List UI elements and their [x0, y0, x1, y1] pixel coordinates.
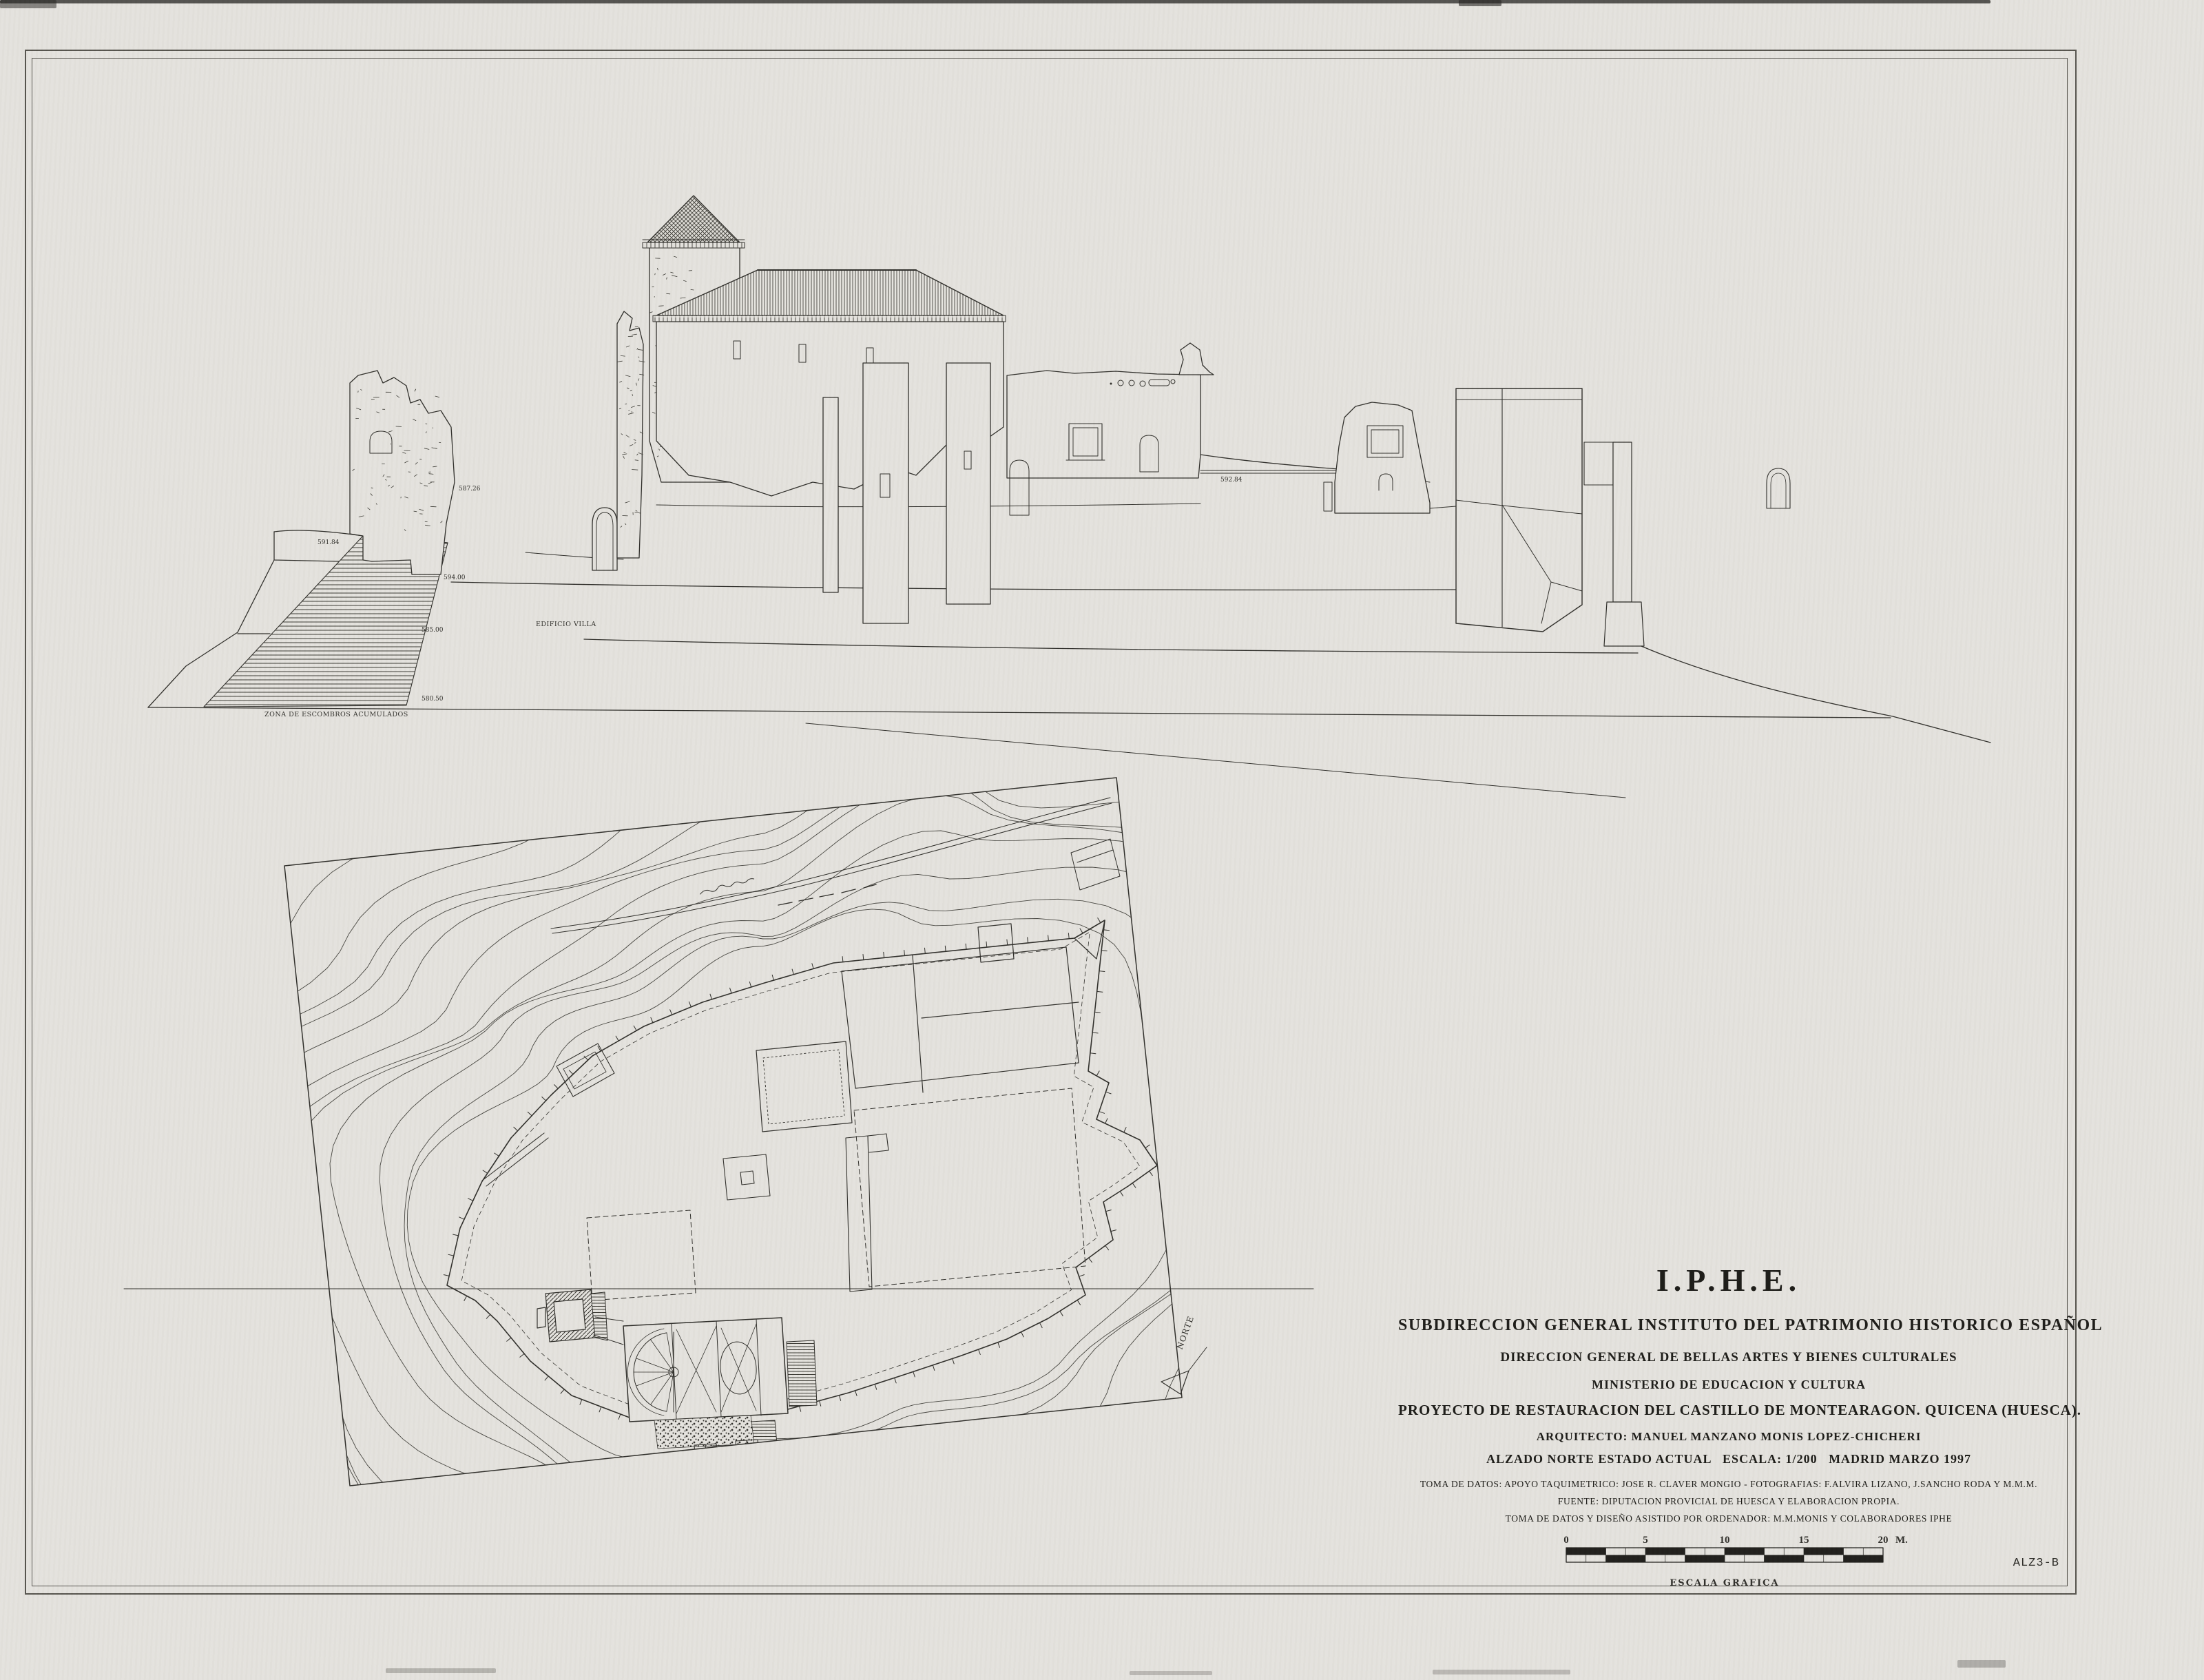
- level-label: 585.00: [422, 627, 444, 634]
- sheet-code: ALZ3-B: [1956, 1557, 2059, 1570]
- north-elevation-drawing: 591.84 594.00 585.00 580.50 587.26 592.8…: [148, 196, 1990, 798]
- project-title: PROYECTO DE RESTAURACION DEL CASTILLO DE…: [1398, 1402, 2059, 1419]
- northeast-keep: [842, 920, 1105, 1092]
- stair-hatch: [787, 1340, 817, 1407]
- square-structure: [723, 1154, 770, 1200]
- right-ruin-tower: [1324, 402, 1430, 513]
- org-line-3: MINISTERIO DE EDUCACION Y CULTURA: [1398, 1378, 2059, 1392]
- pillar-base: [1604, 602, 1644, 646]
- scale-unit: M.: [1895, 1535, 1908, 1546]
- tower-roof: [647, 196, 740, 242]
- edificio-villa-label: EDIFICIO VILLA: [536, 621, 596, 628]
- gate-parapet: [1584, 442, 1613, 485]
- level-label: 591.84: [318, 539, 340, 546]
- credits-line-1: TOMA DE DATOS: APOYO TAQUIMETRICO: JOSE …: [1398, 1479, 2059, 1490]
- graphic-scale-bar: 0 5 10 15 20 M. ESCALA GRAFICA: [1563, 1535, 1908, 1588]
- rubble-zone-label: ZONA DE ESCOMBROS ACUMULADOS: [264, 711, 408, 718]
- west-gate-tower: [537, 1289, 623, 1345]
- scale-tick-15: 15: [1799, 1535, 1809, 1546]
- norte-label: NORTE: [1175, 1314, 1196, 1351]
- scale-tick-5: 5: [1643, 1535, 1648, 1546]
- right-slope: [1641, 646, 1990, 743]
- north-arrow: NORTE: [1161, 1314, 1207, 1394]
- gate-pillar: [1613, 442, 1632, 602]
- building-trace: [587, 1210, 696, 1300]
- scale-tick-0: 0: [1563, 1535, 1569, 1546]
- cistern: [756, 1041, 852, 1132]
- access-road: [551, 798, 1120, 933]
- architect-line: ARQUITECTO: MANUEL MANZANO MONIS LOPEZ-C…: [1398, 1430, 2059, 1444]
- drawing-sheet: 591.84 594.00 585.00 580.50 587.26 592.8…: [0, 0, 2204, 1680]
- org-line-2: DIRECCION GENERAL DE BELLAS ARTES Y BIEN…: [1398, 1350, 2059, 1365]
- title-block: I.P.H.E. SUBDIRECCION GENERAL INSTITUTO …: [1398, 1262, 2059, 1531]
- org-line-1: SUBDIRECCION GENERAL INSTITUTO DEL PATRI…: [1398, 1316, 2059, 1335]
- level-label: 580.50: [422, 696, 444, 703]
- tower-cornice: [643, 242, 745, 248]
- church-plan: [623, 1318, 817, 1475]
- level-label: 594.00: [444, 574, 466, 581]
- pinnacle: [1179, 343, 1214, 375]
- scale-tick-20: 20: [1878, 1535, 1889, 1546]
- northwest-building: [482, 1044, 614, 1186]
- narrow-wall-structure: [846, 1134, 888, 1292]
- credits-line-2: FUENTE: DIPUTACION PROVICIAL DE HUESCA Y…: [1398, 1496, 2059, 1507]
- scale-caption: ESCALA GRAFICA: [1670, 1578, 1779, 1588]
- road-label-scribble: [699, 878, 754, 894]
- eave-band: [653, 315, 1006, 322]
- standing-arch-ruin: [1767, 468, 1790, 508]
- left-ruin-wall: [350, 371, 455, 574]
- level-label: 592.84: [1220, 477, 1243, 484]
- scale-tick-10: 10: [1720, 1535, 1730, 1546]
- drawing-title: ALZADO NORTE ESTADO ACTUAL ESCALA: 1/200…: [1398, 1452, 2059, 1466]
- title-heading: I.P.H.E.: [1398, 1262, 2059, 1298]
- long-ruin-wall: [1007, 343, 1214, 515]
- courtyard-outline: [854, 1088, 1085, 1287]
- arched-doorway: [592, 508, 617, 570]
- level-label: 587.26: [459, 486, 481, 492]
- ruined-pier: [617, 311, 645, 558]
- gate-building: [1456, 388, 1644, 646]
- rubble-speckle: [654, 1415, 754, 1449]
- credits-line-3: TOMA DE DATOS Y DISEÑO ASISTIDO POR ORDE…: [1398, 1513, 2059, 1524]
- road-switchback-block: [1071, 839, 1120, 890]
